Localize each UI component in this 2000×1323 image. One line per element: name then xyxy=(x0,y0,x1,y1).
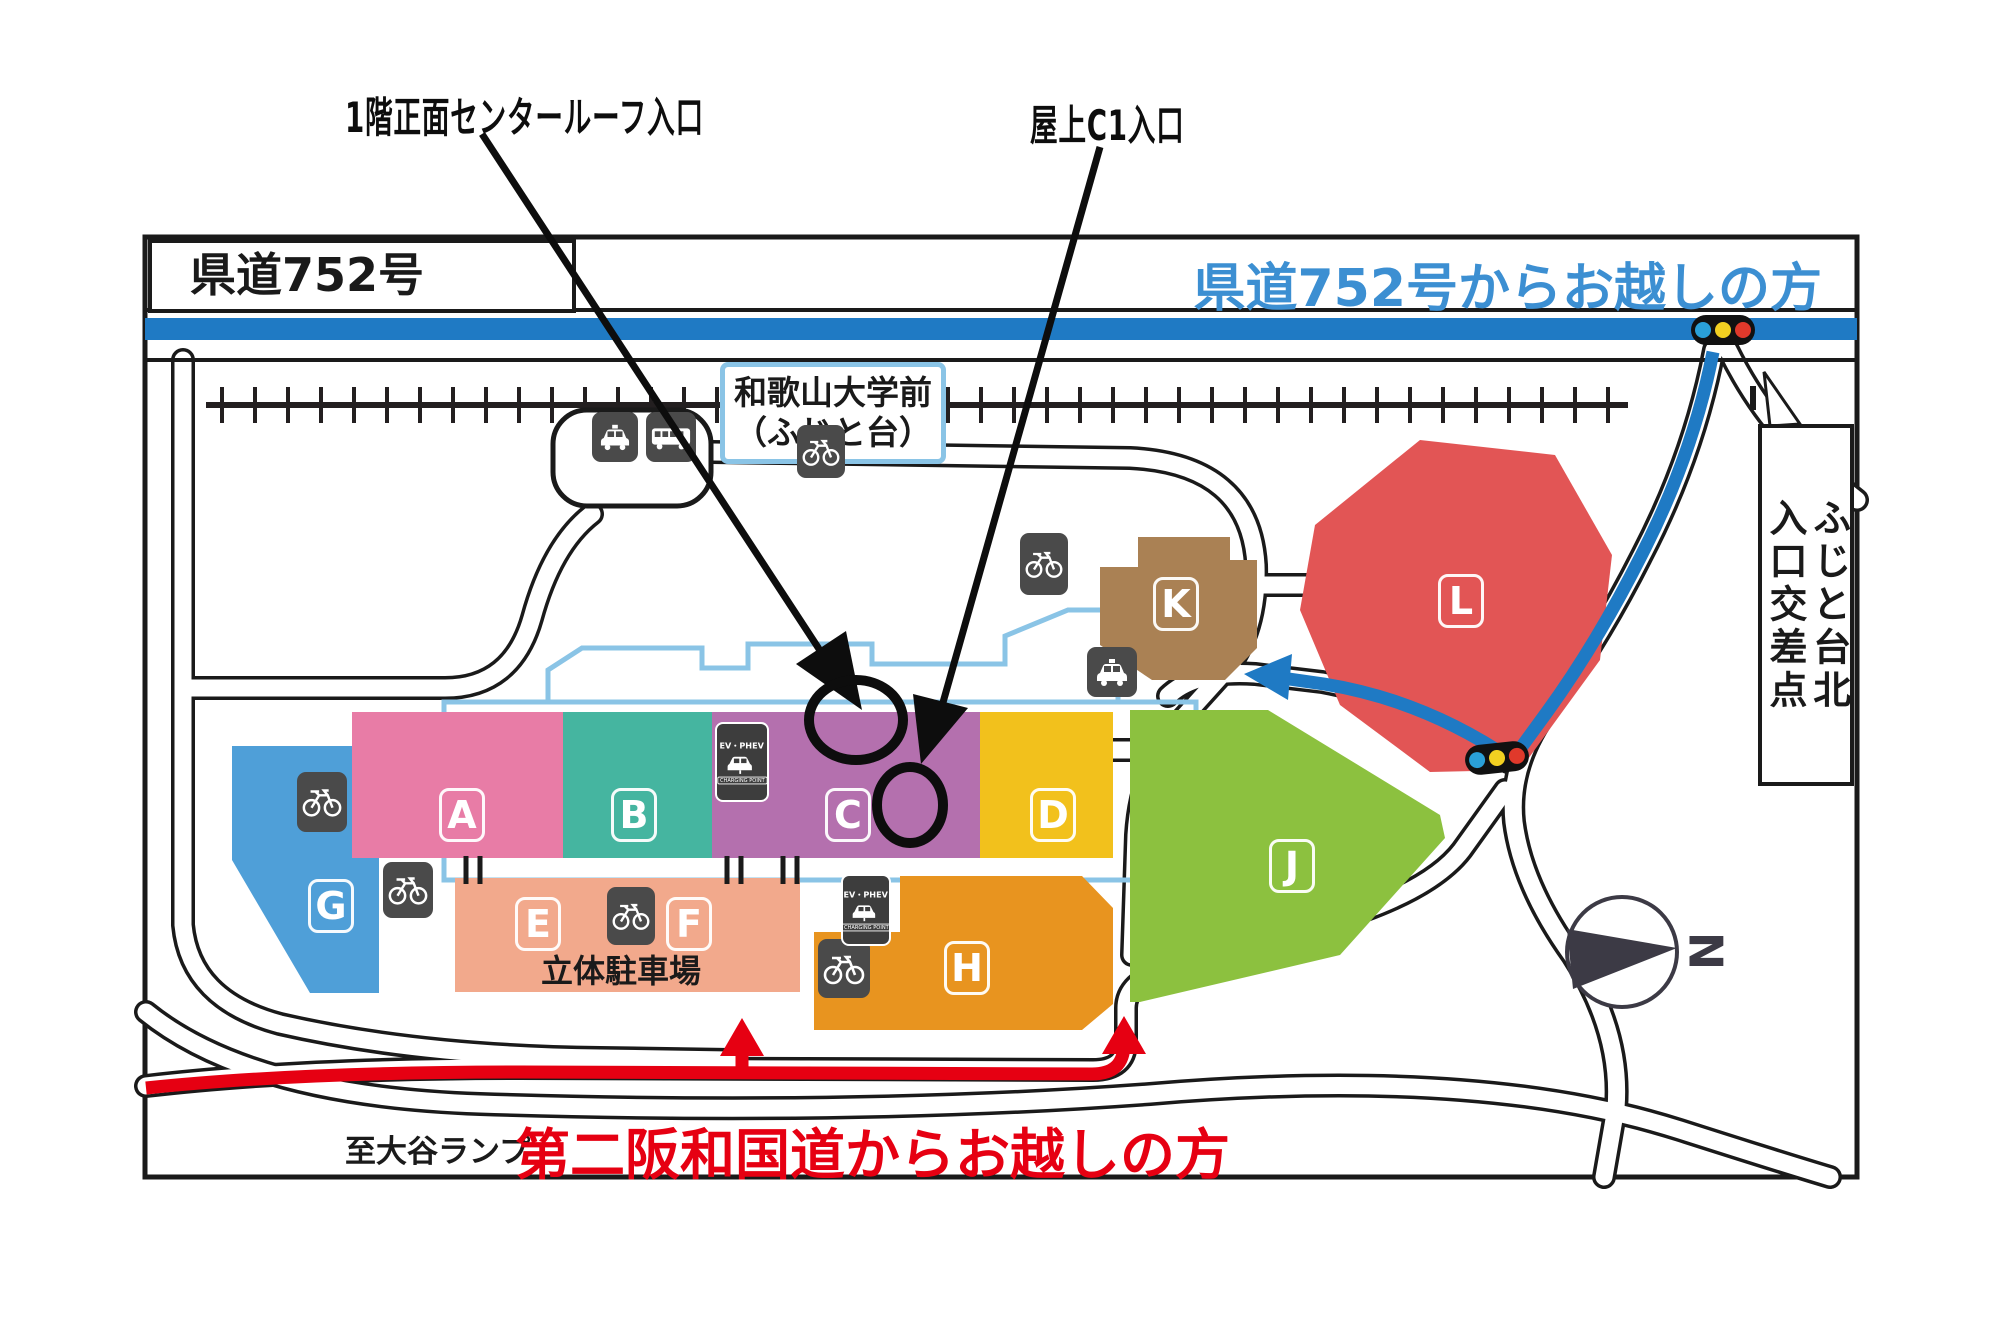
block-f-label: F xyxy=(666,897,712,951)
bicycle-icon xyxy=(1020,533,1068,595)
taxi-icon xyxy=(592,412,638,462)
access-map: 1階正面センタールーフ入口 屋上C1入口 県道752号 県道752号からお越しの… xyxy=(0,0,2000,1323)
callout-tail xyxy=(1764,372,1800,426)
ev-title: EV・PHEV xyxy=(720,740,764,752)
route752-label: 県道752号 xyxy=(152,243,572,307)
red-route-title: 第二阪和国道からお越しの方 xyxy=(515,1110,1230,1190)
traffic-light-icon xyxy=(1464,740,1531,777)
station-name: 和歌山大学前 xyxy=(734,373,932,413)
entrance2-marker-circle xyxy=(877,767,943,843)
road-topleft-horizontal xyxy=(183,514,592,688)
intersection-callout: 入口交差点 ふじと台北 xyxy=(1758,424,1854,786)
road-network xyxy=(146,350,1857,1177)
block-a-label: A xyxy=(439,788,485,842)
bus-icon xyxy=(646,412,696,462)
traffic-light-icon xyxy=(1691,315,1755,345)
ev-charging-icon: EV・PHEV CHARGING POINT xyxy=(841,874,891,946)
taxi-icon xyxy=(1087,647,1137,697)
ev-title: EV・PHEV xyxy=(844,889,888,901)
driveway-stubs xyxy=(466,856,797,884)
red-route-arrowhead-west xyxy=(720,1018,764,1056)
route752-road xyxy=(145,318,1857,340)
road-between-l-and-j xyxy=(1168,673,1508,762)
compass xyxy=(1567,897,1677,1007)
block-c-label: C xyxy=(825,788,871,842)
block-j-label: J xyxy=(1269,839,1315,893)
blue-route xyxy=(1244,352,1713,760)
road-topleft-horizontal xyxy=(183,514,592,688)
entrance1-arrowhead xyxy=(796,631,862,710)
entrance2-leader-line xyxy=(942,147,1100,706)
road-station-east xyxy=(712,452,1256,955)
bicycle-icon xyxy=(797,425,845,478)
red-route-arrowhead-east xyxy=(1102,1016,1146,1054)
blue-route-title: 県道752号からお越しの方 xyxy=(1000,246,1822,321)
ev-subtitle: CHARGING POINT xyxy=(717,777,767,785)
map-frame xyxy=(145,237,1857,1177)
road-between-l-and-j xyxy=(1168,673,1508,762)
blue-route-arrowhead xyxy=(1244,654,1292,700)
block-g-label: G xyxy=(308,879,354,933)
road-station-east xyxy=(712,452,1256,955)
callout-left-column: 入口交差点 xyxy=(1763,498,1805,713)
block-l-label: L xyxy=(1438,574,1484,628)
parking-garage-label: 立体駐車場 xyxy=(536,946,706,992)
mall-outline xyxy=(444,610,1196,880)
bicycle-icon xyxy=(607,887,655,945)
entrance1-label: 1階正面センタールーフ入口 xyxy=(345,84,704,145)
block-k-label: K xyxy=(1153,577,1199,631)
entrance2-label: 屋上C1入口 xyxy=(1030,92,1184,153)
entrance1-marker-circle xyxy=(809,680,903,760)
ev-subtitle: CHARGING POINT xyxy=(841,924,891,932)
ev-charging-icon: EV・PHEV CHARGING POINT xyxy=(715,722,769,802)
ramp-label: 至大谷ランプ xyxy=(345,1126,530,1171)
block-d-label: D xyxy=(1030,788,1076,842)
bicycle-icon xyxy=(297,772,347,832)
parking-blocks xyxy=(232,440,1612,1030)
route752-label-box: 県道752号 xyxy=(148,239,576,313)
red-route xyxy=(146,1016,1146,1088)
bicycle-icon xyxy=(818,939,870,998)
bicycle-icon xyxy=(383,862,433,918)
road-east-diagonal xyxy=(1513,350,1714,1177)
entrance2-arrowhead xyxy=(913,694,968,764)
callout-right-column: ふじと台北 xyxy=(1807,498,1849,713)
block-e-label: E xyxy=(515,897,561,951)
road-east-diagonal xyxy=(1513,350,1714,1177)
compass-needle xyxy=(1567,929,1677,989)
block-h-label: H xyxy=(944,941,990,995)
compass-n-label: N xyxy=(1678,932,1732,971)
block-b-label: B xyxy=(611,788,657,842)
intersection-mark xyxy=(1750,386,1756,410)
